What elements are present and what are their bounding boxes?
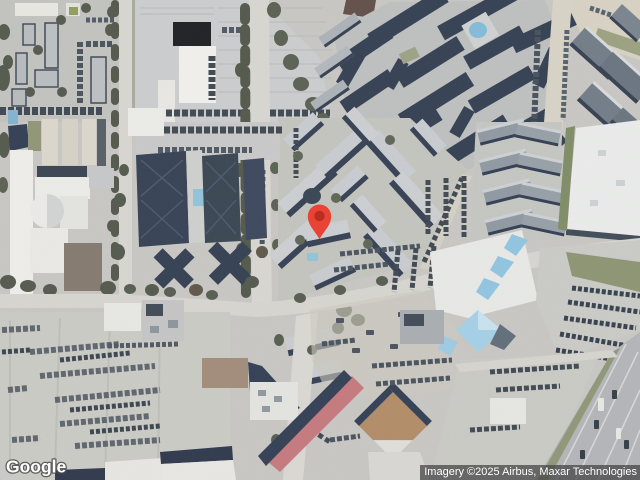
svg-text:Google: Google (6, 457, 67, 477)
